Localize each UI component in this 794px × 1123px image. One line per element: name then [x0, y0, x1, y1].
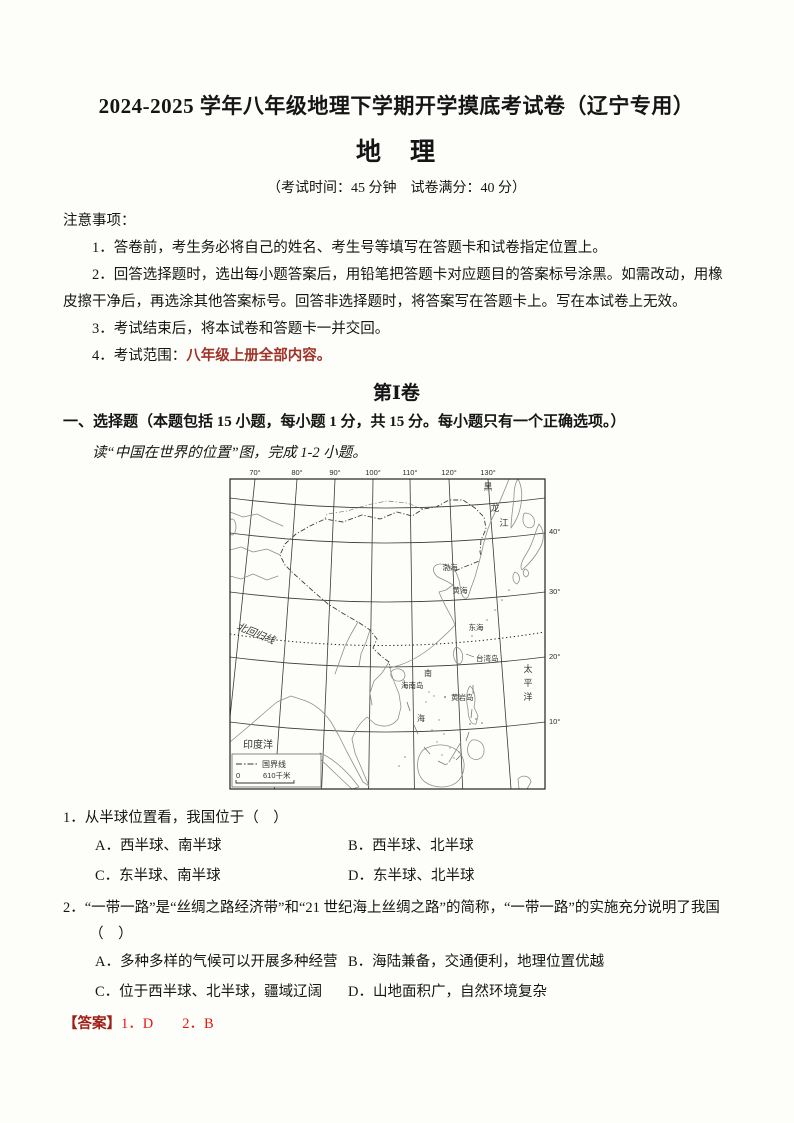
- bohai-sea-label: 渤海: [443, 562, 458, 572]
- scale-km-label: 610千米: [263, 770, 291, 780]
- svg-text:40°: 40°: [549, 527, 560, 536]
- svg-text:130°: 130°: [480, 468, 496, 477]
- tropic-of-cancer-line: [230, 632, 545, 646]
- taiwan-island-label: 台湾岛: [476, 653, 499, 663]
- notice-item-4: 4．考试范围：八年级上册全部内容。: [63, 343, 730, 370]
- q1-option-a: A．西半球、南半球: [95, 831, 348, 861]
- coastlines: [228, 479, 543, 789]
- heilongjiang-label-char1: 黑: [483, 482, 492, 492]
- taiwan-leader-line: [466, 654, 474, 657]
- pacific-ocean-label-char2: 平: [523, 678, 532, 688]
- svg-text:30°: 30°: [549, 587, 560, 596]
- yellow-sea-label: 黄海: [453, 585, 468, 595]
- south-china-sea-label-char2: 海: [417, 713, 425, 723]
- latitude-labels: 40° 30° 20° 10°: [549, 527, 560, 726]
- east-china-sea-label: 东海: [469, 622, 484, 632]
- q2-option-c: C．位于西半球、北半球，疆域辽阔: [95, 977, 348, 1007]
- question-2-options-row-1: A．多种多样的气候可以开展多种经营 B．海陆兼备，交通便利，地理位置优越: [63, 947, 730, 977]
- svg-text:110°: 110°: [403, 468, 418, 477]
- section-1-heading: 一、选择题（本题包括 15 小题，每小题 1 分，共 15 分。每小题只有一个正…: [63, 411, 730, 433]
- notice-item-2: 2．回答选择题时，选出每小题答案后，用铅笔把答题卡对应题目的答案标号涂黑。如需改…: [63, 262, 730, 316]
- south-china-sea-label-char1: 南: [424, 668, 432, 678]
- svg-text:80°: 80°: [291, 468, 302, 477]
- subject-title: 地 理: [63, 132, 730, 168]
- question-1-options-row-1: A．西半球、南半球 B．西半球、北半球: [63, 831, 730, 861]
- exam-info: （考试时间：45 分钟 试卷满分：40 分）: [63, 177, 730, 197]
- heilongjiang-label-char3: 江: [499, 518, 508, 528]
- exam-page: 2024-2025 学年八年级地理下学期开学摸底考试卷（辽宁专用） 地 理 （考…: [0, 0, 794, 1037]
- small-island-dots: [398, 589, 510, 767]
- answer-label: 【答案】: [63, 1016, 121, 1032]
- question-1: 1．从半球位置看，我国位于（ ） A．西半球、南半球 B．西半球、北半球 C．东…: [63, 805, 730, 891]
- svg-text:90°: 90°: [329, 468, 340, 477]
- china-world-position-map: 70° 80° 90° 100° 110° 120° 130° 40° 30° …: [223, 464, 730, 801]
- q1-option-d: D．东半球、北半球: [348, 861, 474, 891]
- national-border-lines: [280, 500, 486, 765]
- indian-ocean-label: 印度洋: [243, 738, 273, 751]
- answer-line: 【答案】1．D 2．B: [63, 1011, 730, 1037]
- question-2-options-row-2: C．位于西半球、北半球，疆域辽阔 D．山地面积广，自然环境复杂: [63, 977, 730, 1007]
- map-frame: [230, 479, 545, 789]
- q2-option-b: B．海陆兼备，交通便利，地理位置优越: [348, 947, 604, 977]
- svg-text:70°: 70°: [249, 468, 260, 477]
- pacific-ocean-label-char3: 洋: [523, 691, 532, 702]
- exam-scope-text: 八年级上册全部内容。: [186, 348, 331, 364]
- q2-option-d: D．山地面积广，自然环境复杂: [348, 977, 547, 1007]
- q2-option-a: A．多种多样的气候可以开展多种经营: [95, 947, 348, 977]
- tropic-of-cancer-label: 北回归线: [235, 621, 278, 647]
- map-figure: 70° 80° 90° 100° 110° 120° 130° 40° 30° …: [223, 464, 569, 796]
- legend-border-label: 国界线: [262, 759, 286, 769]
- answer-text: 1．D 2．B: [121, 1016, 214, 1032]
- question-2-stem: 2．“一带一路”是“丝绸之路经济带”和“21 世纪海上丝绸之路”的简称，“一带一…: [63, 895, 730, 921]
- q1-option-b: B．西半球、北半球: [348, 831, 474, 861]
- pacific-ocean-label-char1: 太: [523, 663, 532, 674]
- part-1-title: 第Ⅰ卷: [63, 378, 730, 405]
- svg-text:10°: 10°: [549, 717, 560, 726]
- question-1-stem: 1．从半球位置看，我国位于（ ）: [63, 805, 730, 831]
- map-legend: 国界线 0 610千米: [232, 754, 321, 787]
- svg-text:120°: 120°: [441, 468, 457, 477]
- notice-item-4-label: 4．考试范围：: [92, 348, 186, 364]
- notice-section: 注意事项： 1．答卷前，考生务必将自己的姓名、考生号等填写在答题卡和试卷指定位置…: [63, 208, 730, 370]
- svg-text:100°: 100°: [365, 468, 381, 477]
- huangyan-island-label: 黄岩岛: [451, 692, 474, 702]
- q1-option-c: C．东半球、南半球: [95, 861, 348, 891]
- map-text-labels: 黑 龙 江 渤海 黄海 东海 台湾岛 南 海南岛 黄岩岛 海 太 平 洋 印度洋: [235, 482, 533, 751]
- scale-zero-label: 0: [236, 771, 240, 780]
- hainan-island-label: 海南岛: [401, 680, 424, 690]
- notice-item-3: 3．考试结束后，将本试卷和答题卡一并交回。: [63, 316, 730, 343]
- page-title: 2024-2025 学年八年级地理下学期开学摸底考试卷（辽宁专用）: [63, 90, 730, 120]
- longitude-labels: 70° 80° 90° 100° 110° 120° 130°: [249, 468, 495, 477]
- notice-item-1: 1．答卷前，考生务必将自己的姓名、考生号等填写在答题卡和试卷指定位置上。: [63, 235, 730, 262]
- notice-heading: 注意事项：: [63, 208, 730, 235]
- question-1-options-row-2: C．东半球、南半球 D．东半球、北半球: [63, 861, 730, 891]
- svg-text:20°: 20°: [549, 652, 560, 661]
- question-2-stem-continued: （ ）: [63, 921, 730, 947]
- heilongjiang-label-char2: 龙: [490, 502, 499, 513]
- question-group-intro: 读“中国在世界的位置”图，完成 1-2 小题。: [63, 441, 730, 462]
- question-2: 2．“一带一路”是“丝绸之路经济带”和“21 世纪海上丝绸之路”的简称，“一带一…: [63, 895, 730, 1007]
